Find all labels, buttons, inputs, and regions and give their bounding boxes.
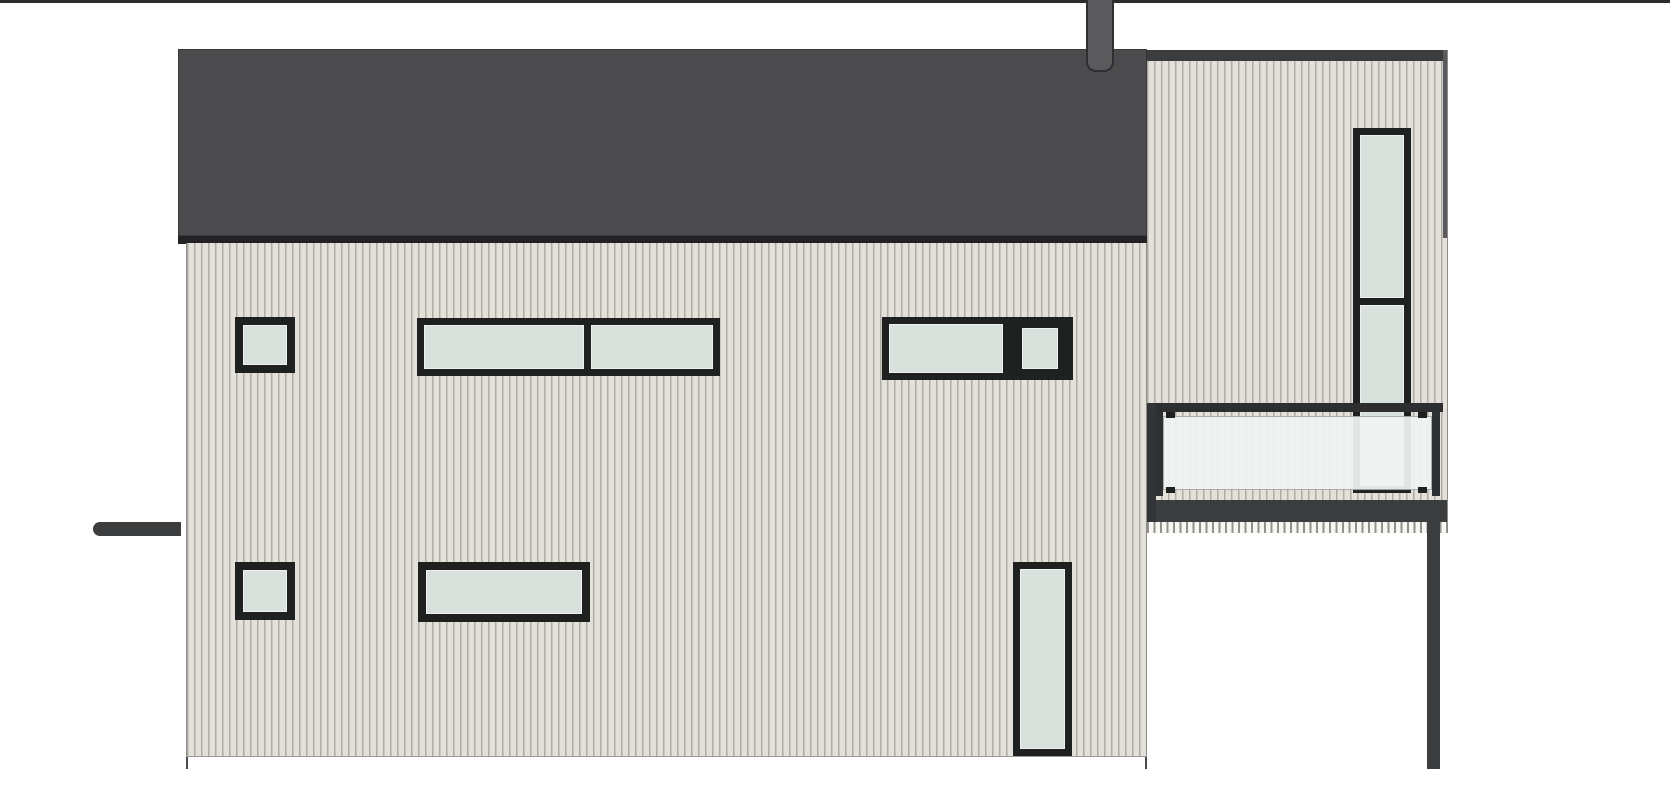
window-glass (591, 325, 713, 369)
glass-clamp (1166, 487, 1175, 493)
window-glass (426, 570, 582, 614)
window-upper-ribbon (417, 318, 720, 376)
window-glass (424, 325, 584, 369)
window-glass (243, 325, 287, 365)
window-sash-glass (1022, 328, 1058, 369)
window-upper-small-left (235, 317, 295, 373)
tower-soffit-boards (1147, 522, 1447, 533)
chimney (1086, 0, 1114, 72)
balcony-glass-panel (1163, 416, 1432, 490)
balcony-handrail (1147, 403, 1443, 412)
balcony-end-post (1147, 403, 1156, 522)
window-lower-horizontal (418, 562, 590, 622)
glass-clamp (1418, 412, 1427, 418)
window-glass (1360, 135, 1404, 298)
tower-parapet-band (1147, 50, 1447, 61)
window-glass (243, 570, 287, 612)
balcony-floor-slab (1147, 500, 1447, 522)
support-column (1427, 522, 1440, 769)
roof (178, 49, 1147, 236)
ground-line (0, 0, 1670, 3)
balcony-glass-frame-left (1156, 412, 1163, 496)
tower-corner-shadow (1443, 50, 1447, 238)
window-lower-full-height (1013, 562, 1072, 756)
window-lower-small-left (235, 562, 295, 620)
wall-base-corner-left (186, 757, 188, 769)
window-upper-pair-right (882, 317, 1073, 380)
wall-base-corner-right (1145, 757, 1147, 769)
window-glass (889, 324, 1003, 373)
left-canopy (93, 522, 181, 536)
glass-clamp (1166, 412, 1175, 418)
glass-clamp (1418, 487, 1427, 493)
window-glass (1020, 569, 1065, 749)
balcony-glass-frame-right (1432, 412, 1440, 496)
elevation-drawing (0, 0, 1670, 800)
